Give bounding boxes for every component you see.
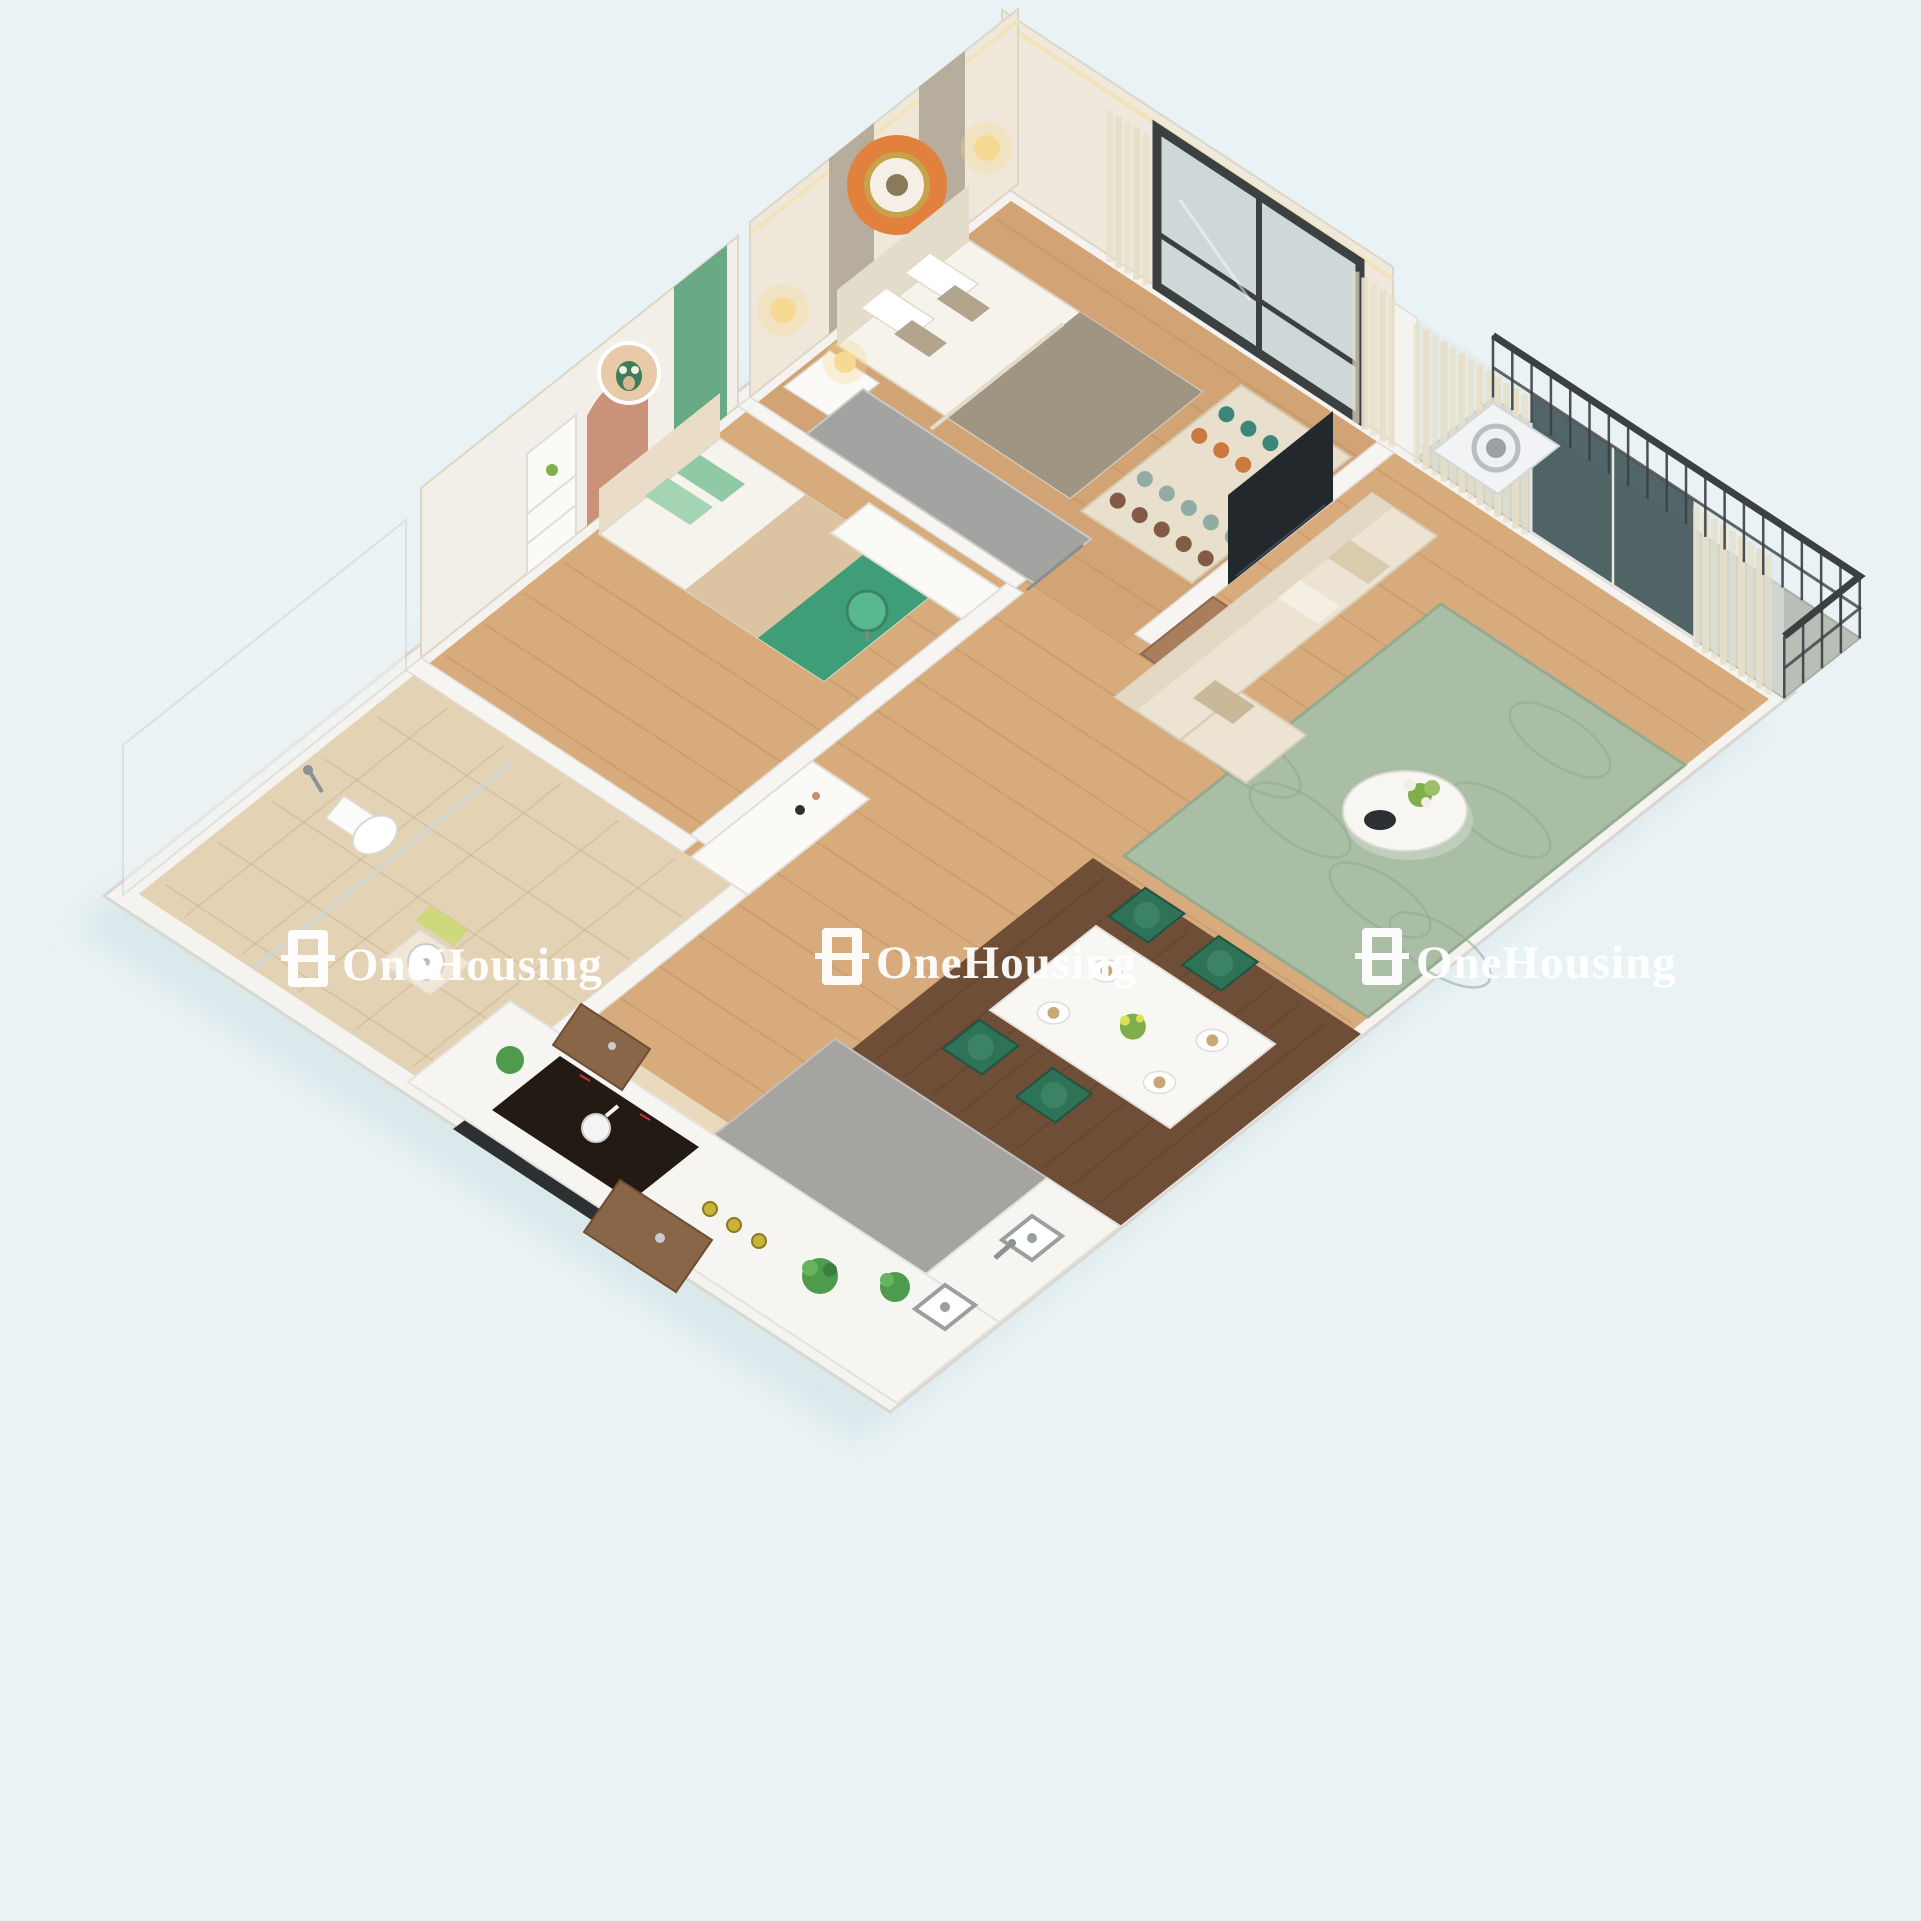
- potted-plant: [496, 1046, 524, 1074]
- watermark-text: OneHousing: [1416, 937, 1677, 989]
- corner-column: [1393, 302, 1417, 458]
- watermark-text: OneHousing: [876, 937, 1137, 989]
- oil-bottle: [703, 1202, 717, 1216]
- owl-badge: [599, 343, 659, 403]
- onehousing-logo-icon: [288, 930, 328, 987]
- oil-bottle: [752, 1234, 766, 1248]
- watermark-text: OneHousing: [342, 939, 603, 991]
- floorplan-render: OneHousing OneHousing OneHousing: [0, 0, 1921, 1921]
- potted-plant: [802, 1258, 838, 1294]
- oil-bottle: [727, 1218, 741, 1232]
- table-lamp-glow: [834, 351, 856, 373]
- door-handle: [608, 1042, 616, 1050]
- door-handle: [655, 1233, 665, 1243]
- wall-lamp-glow: [770, 297, 796, 323]
- wall-lamp-glow: [974, 135, 1000, 161]
- mirror-center: [886, 174, 908, 196]
- tray: [1364, 810, 1396, 830]
- onehousing-logo-icon: [1362, 928, 1402, 985]
- potted-plant: [880, 1272, 910, 1302]
- onehousing-logo-icon: [822, 928, 862, 985]
